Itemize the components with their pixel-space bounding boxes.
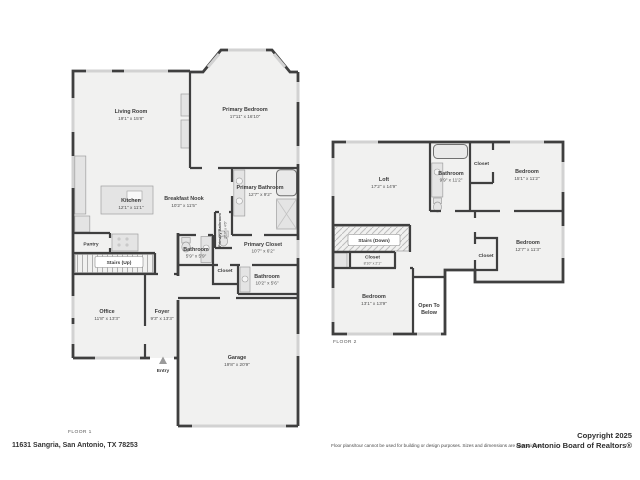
floor1-plan: Living Room 19'1" x 15'8" Primary Bedroo… bbox=[68, 50, 299, 435]
range-burner bbox=[117, 243, 120, 246]
disclaimer-text: Floor plans/tour cannot be used for buil… bbox=[331, 443, 543, 448]
copyright-line1: Copyright 2025 bbox=[577, 431, 633, 440]
loft-label: Loft bbox=[379, 177, 389, 183]
floor2-closet-top-label: Closet bbox=[474, 161, 489, 167]
floor2-caption: FLOOR 2 bbox=[333, 339, 357, 345]
entry-label: Entry bbox=[157, 368, 170, 374]
bathroom-dims: 5'9" x 5'9" bbox=[186, 254, 207, 259]
range-burner bbox=[117, 237, 120, 240]
kitchen-label: Kitchen bbox=[121, 198, 141, 204]
foyer-dims: 9'3" x 13'3" bbox=[150, 316, 173, 321]
copyright-line2: San Antonio Board of Realtors® bbox=[516, 441, 632, 450]
living-room-label: Living Room bbox=[115, 109, 148, 115]
sink bbox=[236, 198, 242, 204]
kitchen-fridge bbox=[75, 216, 90, 232]
bathroom2-dims: 10'2" x 5'6" bbox=[255, 281, 278, 286]
floor1-caption: FLOOR 1 bbox=[68, 429, 92, 435]
primary-closet-label: Primary Closet bbox=[244, 242, 282, 248]
open-to-below-label2: Below bbox=[421, 310, 438, 316]
living-room-dims: 19'1" x 15'8" bbox=[118, 116, 144, 121]
primary-closet-dims: 10'7" x 6'2" bbox=[251, 249, 274, 254]
footer: 11631 Sangria, San Antonio, TX 78253 Flo… bbox=[12, 431, 633, 450]
pantry-label: Pantry bbox=[83, 242, 99, 248]
bathroom-label: Bathroom bbox=[183, 247, 209, 253]
closet-stairs-dims: 8'10" x 2'1" bbox=[364, 262, 382, 266]
floor2-bathroom-label: Bathroom bbox=[438, 171, 464, 177]
kitchen-range bbox=[112, 234, 138, 251]
office-label: Office bbox=[99, 309, 114, 315]
sink bbox=[236, 178, 242, 184]
primary-wc-label: Primary Bathroom bbox=[217, 212, 222, 246]
kitchen-dims: 12'1" x 11'1" bbox=[118, 205, 144, 210]
closet-mid-label: Closet bbox=[479, 253, 494, 259]
open-to-below-label: Open To bbox=[418, 303, 440, 309]
garage-label: Garage bbox=[228, 355, 247, 361]
garage-dims: 19'8" x 20'9" bbox=[224, 362, 250, 367]
primary-bathroom-label: Primary Bathroom bbox=[236, 185, 283, 191]
bathroom2-label: Bathroom bbox=[254, 274, 280, 280]
primary-bath-tub bbox=[277, 170, 297, 196]
living-niche bbox=[181, 120, 190, 148]
stairs-up-label: Stairs (Up) bbox=[107, 260, 132, 266]
floorplan-image: Living Room 19'1" x 15'8" Primary Bedroo… bbox=[0, 0, 640, 480]
bedroom-bl-dims: 13'1" x 13'9" bbox=[361, 301, 387, 306]
bedroom-tr-label: Bedroom bbox=[515, 169, 539, 175]
stair-chase bbox=[334, 253, 347, 268]
floor2-bathroom-dims: 9'9" x 11'2" bbox=[440, 178, 463, 183]
closet-label: Closet bbox=[218, 268, 233, 274]
primary-bedroom-label: Primary Bedroom bbox=[222, 107, 267, 113]
range-burner bbox=[125, 237, 128, 240]
breakfast-nook-dims: 10'2" x 11'5" bbox=[171, 203, 197, 208]
primary-bedroom-dims: 17'11" x 16'10" bbox=[230, 114, 261, 119]
sink bbox=[242, 276, 248, 282]
primary-wc-dims: 2'10" x 4'6" bbox=[224, 220, 228, 238]
floor2-plan: Loft 17'2" x 14'9" Bathroom 9'9" x 11'2"… bbox=[333, 142, 563, 345]
office-dims: 11'8" x 13'3" bbox=[94, 316, 120, 321]
breakfast-nook-label: Breakfast Nook bbox=[164, 196, 204, 202]
bedroom-bl-label: Bedroom bbox=[362, 294, 386, 300]
foyer-label: Foyer bbox=[155, 309, 171, 315]
loft-dims: 17'2" x 14'9" bbox=[371, 184, 397, 189]
bedroom-r-dims: 12'7" x 11'3" bbox=[515, 247, 541, 252]
living-niche bbox=[181, 94, 190, 116]
address-text: 11631 Sangria, San Antonio, TX 78253 bbox=[12, 442, 138, 449]
floorplan-svg: Living Room 19'1" x 15'8" Primary Bedroo… bbox=[0, 0, 640, 480]
stairs-down-label: Stairs (Down) bbox=[358, 238, 390, 244]
kitchen-counter bbox=[75, 156, 86, 214]
primary-bath-vanity bbox=[234, 170, 245, 216]
bedroom-r-label: Bedroom bbox=[516, 240, 540, 246]
floor2-bath-tub bbox=[434, 145, 468, 159]
range-burner bbox=[125, 243, 128, 246]
floor2-hall-area bbox=[445, 211, 475, 270]
closet-stairs-label: Closet bbox=[365, 255, 380, 261]
bedroom-tr-dims: 15'1" x 11'2" bbox=[514, 176, 540, 181]
primary-bathroom-dims: 12'7" x 9'2" bbox=[248, 192, 271, 197]
